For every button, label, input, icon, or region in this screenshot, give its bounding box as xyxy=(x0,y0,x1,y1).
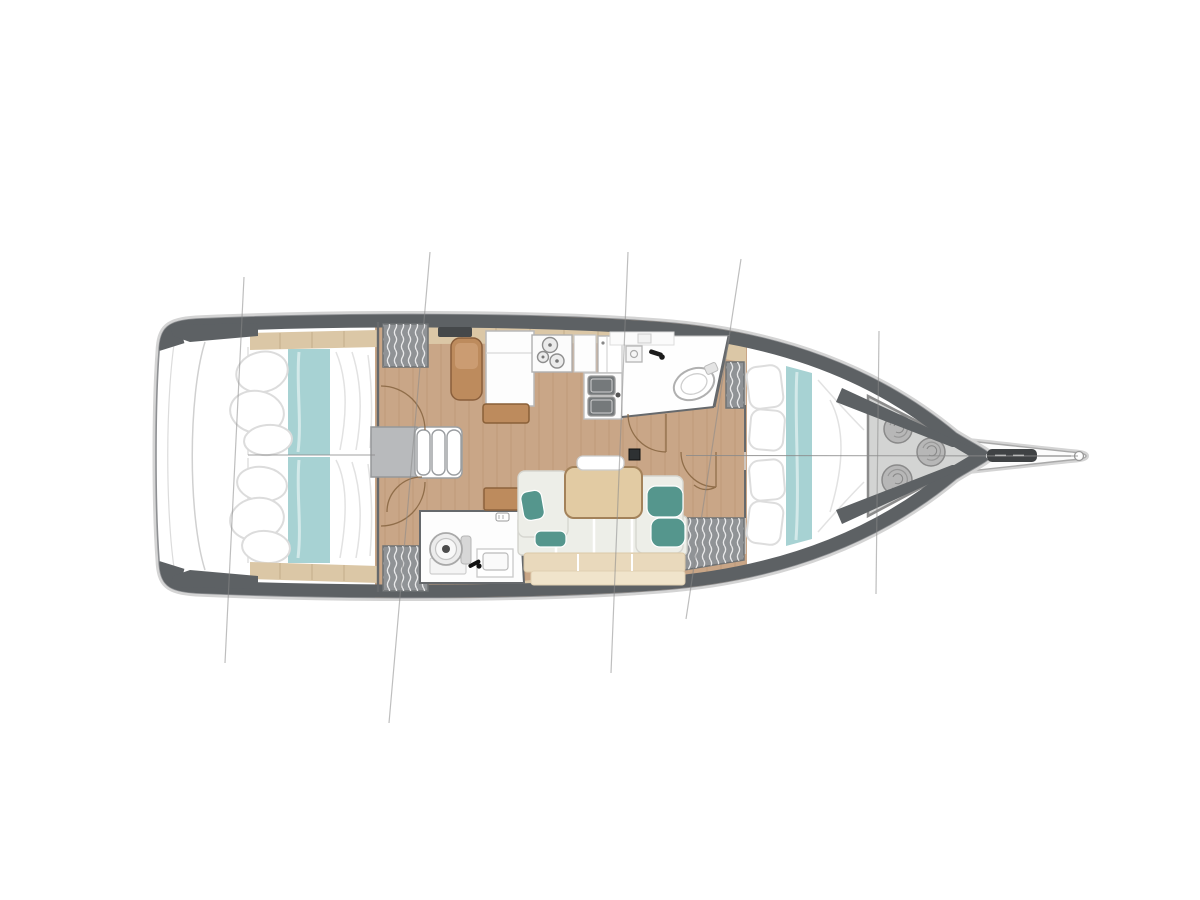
companionway-steps xyxy=(417,430,461,475)
galley-counter xyxy=(574,335,596,372)
port-aft-bed-blanket xyxy=(288,349,330,455)
yacht-deck-plan-canvas xyxy=(0,0,1200,900)
pillow xyxy=(746,500,785,546)
sofa-backrest xyxy=(524,553,685,572)
sofa-backrest-top xyxy=(531,571,685,585)
port-aft-wardrobe xyxy=(383,324,428,367)
shower-fixture xyxy=(626,346,642,362)
pillow xyxy=(748,459,785,502)
vent-icon xyxy=(496,513,509,521)
pillow xyxy=(748,409,785,452)
salon-table-leaf xyxy=(577,456,624,470)
galley-low-cabinet xyxy=(483,404,529,423)
forward-head xyxy=(610,332,729,417)
sink-faucet xyxy=(616,393,621,398)
fridge-handle xyxy=(601,341,604,344)
centerline-forward xyxy=(686,456,1078,457)
throw-pillow xyxy=(651,518,685,547)
blanket-highlight xyxy=(298,352,299,452)
aft-sink xyxy=(477,549,513,577)
port-aft-shelf xyxy=(250,330,378,350)
mast-foot xyxy=(629,449,640,460)
companionway xyxy=(371,427,462,478)
counter-hatch xyxy=(638,334,651,343)
nav-seat-cushion xyxy=(455,343,478,369)
forward-wardrobe-bottom xyxy=(684,518,744,570)
step xyxy=(432,430,445,475)
galley-shelf-appliance xyxy=(438,327,472,337)
pillow xyxy=(746,364,785,410)
throw-pillow xyxy=(535,531,566,547)
salon-table xyxy=(565,467,642,518)
starboard-aft-bed-blanket xyxy=(288,457,330,563)
deck-plan-drawing xyxy=(0,0,1200,900)
blanket-highlight xyxy=(298,460,299,558)
companionway-platform xyxy=(371,427,417,477)
chart-table xyxy=(486,331,534,406)
step xyxy=(447,430,461,475)
step xyxy=(417,430,430,475)
throw-pillow xyxy=(647,486,683,517)
throw-pillow xyxy=(520,489,546,521)
aft-toilet xyxy=(430,533,471,574)
forward-wardrobe-top xyxy=(726,362,744,408)
